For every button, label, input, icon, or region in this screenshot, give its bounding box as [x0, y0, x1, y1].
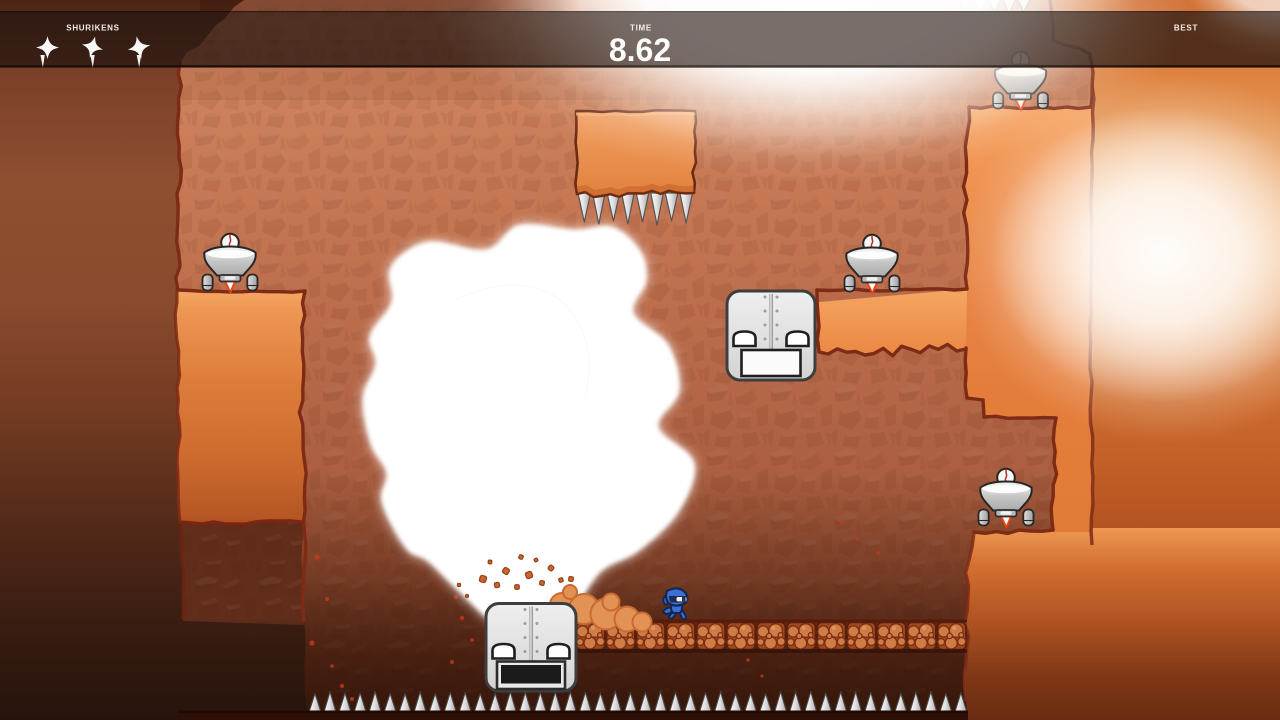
svg-text:SHURIKENS: SHURIKENS	[66, 24, 119, 33]
svg-text:BEST: BEST	[1174, 24, 1198, 33]
svg-text:8.62: 8.62	[609, 32, 671, 68]
